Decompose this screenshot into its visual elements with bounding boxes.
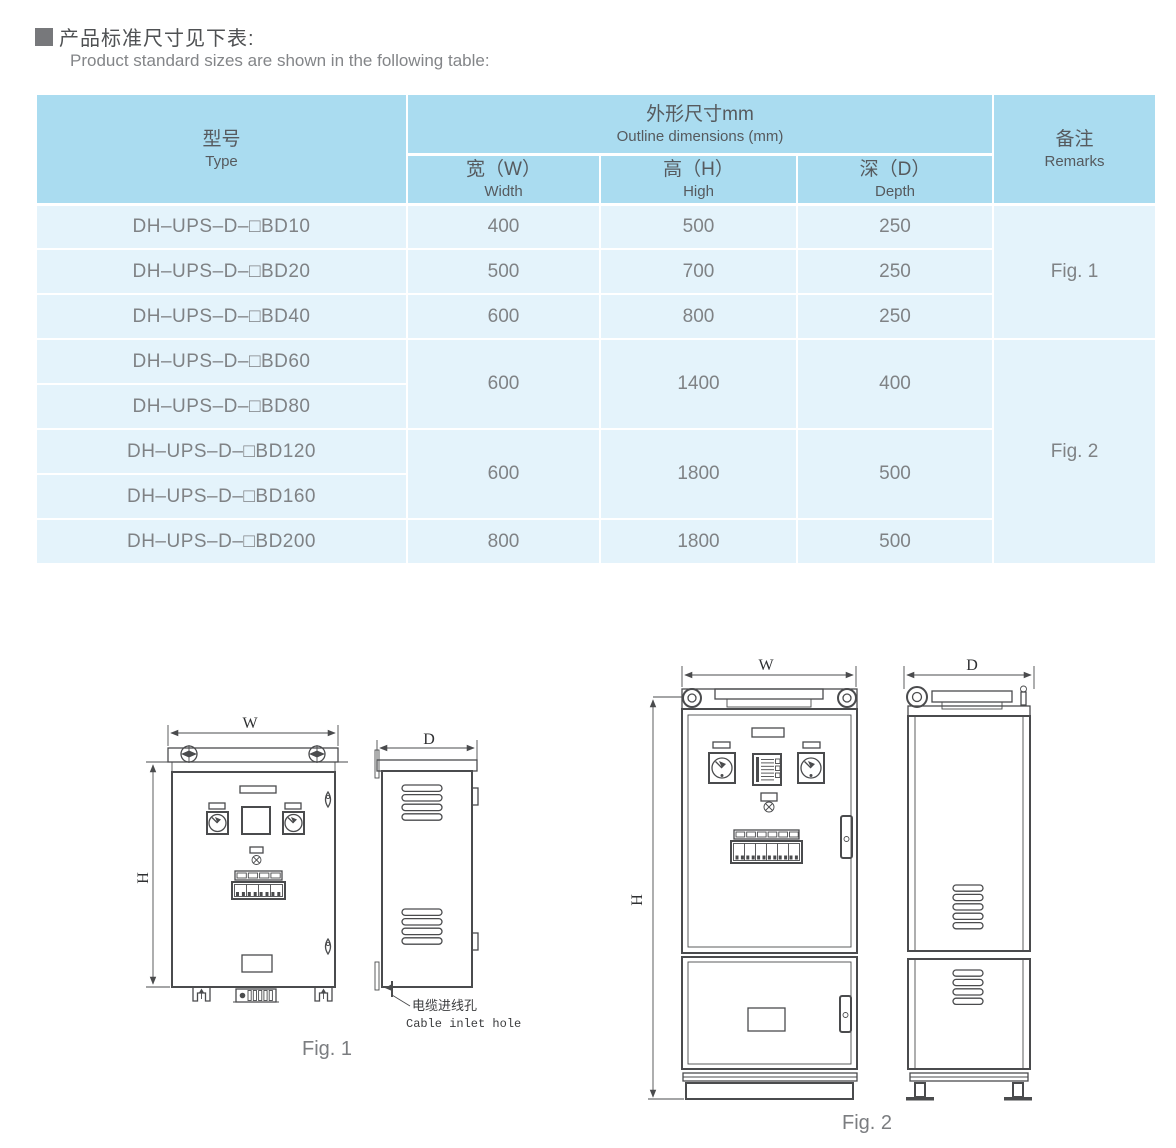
depth-cell: 250 [797,249,993,294]
col-header-width: 宽（W） Width [407,154,600,204]
section-title: 产品标准尺寸见下表: [35,22,255,51]
fig2-d-label: D [966,657,978,674]
fig1-h-label: H [135,872,152,884]
col-header-depth: 深（D） Depth [797,154,993,204]
fig2-display-module [753,754,781,785]
fig2-lifting-eye-icon [683,689,701,707]
width-cell: 500 [407,249,600,294]
fig1-mount-screw-icon [181,745,197,763]
fig1-drawing: W H [140,700,540,1048]
remarks-cell-fig1: Fig. 1 [993,204,1156,339]
fig1-foot-bracket [315,987,332,1001]
fig1-gauge-icon [207,803,228,834]
width-cell: 400 [407,204,600,249]
model-cell: DH–UPS–D–□BD120 [36,429,407,474]
fig2-lifting-eye-icon [838,689,856,707]
fig1-d-label: D [423,731,435,748]
table-row: DH–UPS–D–□BD40 600 800 250 [36,294,1156,339]
fig1-terminal-block [232,871,285,899]
fig1-callout-en: Cable inlet hole [406,1017,521,1031]
fig1-wall-bracket [375,962,379,990]
fig1-mount-screw-icon [309,745,325,763]
fig2-button-icon [761,793,777,812]
table-row: DH–UPS–D–□BD200 800 1800 500 [36,519,1156,564]
fig1-gland-plate [233,989,279,1002]
fig2-door-handle [840,996,851,1032]
fig1-display-window [242,807,270,834]
fig1-lock-pin-icon [326,792,331,807]
fig1-bottom-label [242,955,272,972]
width-cell: 600 [407,429,600,519]
fig2-hinge-pin-icon [1021,686,1027,705]
fig2-door-handle [841,816,852,858]
high-cell: 1800 [600,429,797,519]
section-bullet-icon [35,28,53,46]
table-row: DH–UPS–D–□BD120 600 1800 500 [36,429,1156,474]
high-cell: 800 [600,294,797,339]
fig1-side-view: D [375,731,521,1031]
depth-cell: 500 [797,429,993,519]
remarks-cell-fig2: Fig. 2 [993,339,1156,564]
fig2-lower-door [682,957,857,1069]
model-cell: DH–UPS–D–□BD10 [36,204,407,249]
fig1-callout-cn: 电缆进线孔 [412,998,477,1013]
fig2-h-label: H [629,894,646,906]
section-title-en: Product standard sizes are shown in the … [70,51,490,71]
fig1-foot-bracket [193,987,210,1001]
table-row: DH–UPS–D–□BD20 500 700 250 [36,249,1156,294]
high-cell: 700 [600,249,797,294]
fig2-w-label: W [758,657,774,674]
fig1-button-icon [250,847,263,865]
model-cell: DH–UPS–D–□BD80 [36,384,407,429]
fig2-terminal-block [731,830,802,863]
model-cell: DH–UPS–D–□BD60 [36,339,407,384]
depth-cell: 250 [797,204,993,249]
fig2-side-view: D [904,657,1034,1101]
width-cell: 800 [407,519,600,564]
depth-cell: 400 [797,339,993,429]
high-cell: 1800 [600,519,797,564]
fig2-drawing: W H [628,656,1068,1108]
depth-cell: 250 [797,294,993,339]
fig2-gauge-icon [709,742,735,783]
fig2-nameplate [752,728,784,737]
fig1-nameplate [240,786,276,793]
fig1-gauge-icon [283,803,304,834]
fig1-w-label: W [242,715,258,732]
model-cell: DH–UPS–D–□BD40 [36,294,407,339]
fig1-lock-pin-icon [326,939,331,954]
fig1-caption: Fig. 1 [302,1038,352,1061]
fig2-base-frame [906,1073,1032,1101]
fig2-vent-louvers [953,885,983,929]
model-cell: DH–UPS–D–□BD20 [36,249,407,294]
model-cell: DH–UPS–D–□BD200 [36,519,407,564]
fig2-vent-louvers [953,970,983,1004]
col-header-high: 高（H） High [600,154,797,204]
fig1-vent-louvers [402,785,442,820]
fig2-lifting-eye-icon [907,687,927,707]
width-cell: 600 [407,339,600,429]
col-header-outline: 外形尺寸mm Outline dimensions (mm) [407,94,993,154]
fig1-vent-louvers [402,909,442,944]
spec-table: 型号 Type 外形尺寸mm Outline dimensions (mm) 备… [35,93,1157,565]
fig1-front-view: W H [135,715,348,1002]
col-header-remarks: 备注 Remarks [993,94,1156,204]
fig2-caption: Fig. 2 [842,1112,892,1135]
section-title-cn: 产品标准尺寸见下表: [59,22,255,51]
fig2-base-plinth [683,1073,857,1099]
high-cell: 1400 [600,339,797,429]
width-cell: 600 [407,294,600,339]
fig2-lower-label [748,1008,785,1031]
model-cell: DH–UPS–D–□BD160 [36,474,407,519]
col-header-type: 型号 Type [36,94,407,204]
high-cell: 500 [600,204,797,249]
fig2-upper-door [682,709,857,953]
table-row: DH–UPS–D–□BD10 400 500 250 Fig. 1 [36,204,1156,249]
table-row: DH–UPS–D–□BD60 600 1400 400 Fig. 2 [36,339,1156,384]
depth-cell: 500 [797,519,993,564]
fig2-gauge-icon [798,742,824,783]
fig2-front-view: W H [629,657,857,1099]
fig1-cable-inlet-callout: 电缆进线孔 Cable inlet hole [385,981,521,1031]
catalog-page: 产品标准尺寸见下表: Product standard sizes are sh… [0,0,1176,1148]
